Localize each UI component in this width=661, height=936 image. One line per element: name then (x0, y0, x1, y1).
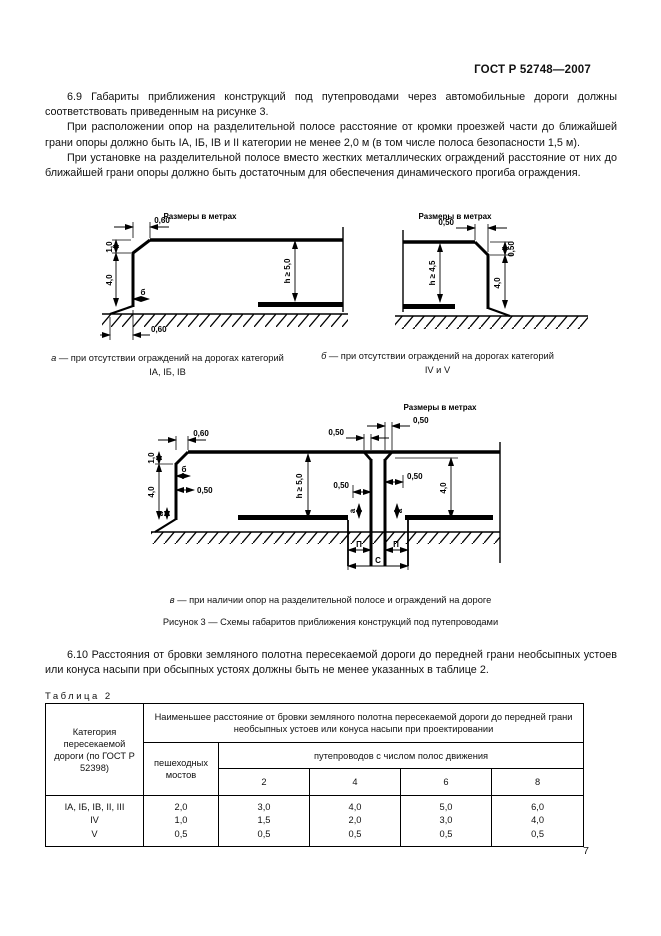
lane-header: 4 (310, 769, 401, 796)
figure-3-title: Рисунок 3 — Схемы габаритов приближения … (0, 617, 661, 627)
table-value: 0,5 (404, 828, 488, 842)
table-value: 1,5 (222, 814, 306, 828)
page-number: 7 (583, 845, 589, 857)
table-value: 4,0 (313, 801, 397, 815)
table-span-header: Наименьшее расстояние от бровки земляног… (144, 704, 584, 743)
dimension-label: 0,50 (438, 218, 454, 227)
dimension-label: 0,60 (193, 429, 209, 438)
table-2-label: Таблица 2 (45, 691, 113, 702)
section-6-10: 6.10 Расстояния от бровки земляного поло… (45, 648, 617, 678)
dimension-label: 1,0 (105, 241, 114, 253)
dimension-label: 0,50 (333, 481, 349, 490)
figure-b-diagram: Размеры в метрах 0,50 0,50 h ≥ 4,5 4,0 (393, 210, 623, 350)
dimension-label: 4,0 (147, 486, 156, 498)
lane-header: 8 (492, 769, 584, 796)
document-page: ГОСТ Р 52748—2007 6.9 Габариты приближен… (0, 0, 661, 936)
table-body-row: IА, IБ, IВ, II, III IV V 2,0 1,0 0,5 3,0… (46, 796, 584, 847)
dimension-label: б (141, 288, 146, 297)
table-value: 4,0 (495, 814, 580, 828)
units-label: Размеры в метрах (164, 212, 238, 221)
table-value: 0,5 (222, 828, 306, 842)
dimension-label: 0,50 (507, 241, 516, 257)
dimension-label: а (156, 511, 165, 516)
paragraph-6-10: 6.10 Расстояния от бровки земляного поло… (45, 648, 617, 678)
dimension-label: h ≥ 4,5 (428, 260, 437, 285)
dimension-label: h ≥ 5,0 (283, 258, 292, 283)
document-code: ГОСТ Р 52748—2007 (474, 64, 591, 76)
dimension-label: 0,50 (407, 472, 423, 481)
table-value: 6,0 (495, 801, 580, 815)
table-value: 3,0 (222, 801, 306, 815)
lane-header: 2 (219, 769, 310, 796)
figure-v-diagram: Размеры в метрах 0,60 1,0 4,0 б 0,50 (143, 400, 513, 600)
dimension-label: 4,0 (493, 277, 502, 289)
paragraph-6-9: 6.9 Габариты приближения конструкций под… (45, 90, 617, 120)
dimension-label: П (356, 540, 362, 549)
table-2: Категория пересекаемой дороги (по ГОСТ Р… (45, 703, 584, 847)
table-value: 0,5 (147, 828, 215, 842)
category-value: V (49, 828, 140, 842)
dimension-label: а (348, 508, 357, 513)
table-value: 2,0 (313, 814, 397, 828)
units-label: Размеры в метрах (404, 403, 478, 412)
dimension-label: 0,50 (328, 428, 344, 437)
dimension-label: 0,50 (197, 486, 213, 495)
figure-a-diagram: Размеры в метрах 0,60 1,0 4,0 h ≥ 5,0 б (100, 210, 350, 350)
paragraph-6-9-c: При установке на разделительной полосе в… (45, 151, 617, 181)
dimension-label: С (375, 556, 381, 565)
caption-b-text: — при отсутствии ограждений на дорогах к… (326, 351, 554, 361)
dimension-label: а (395, 508, 404, 513)
caption-a: а — при отсутствии ограждений на дорогах… (40, 352, 295, 379)
table-value: 5,0 (404, 801, 488, 815)
caption-a-categories: IА, IБ, IВ (149, 367, 186, 377)
section-6-9: 6.9 Габариты приближения конструкций под… (45, 90, 617, 181)
caption-a-text: — при отсутствии ограждений на дорогах к… (56, 353, 284, 363)
table-value: 3,0 (404, 814, 488, 828)
table-col2-header: пешеходных мостов (144, 743, 219, 796)
dimension-label: 0,60 (151, 325, 167, 334)
ground-hatching (151, 532, 500, 544)
dimension-label: б (182, 465, 187, 474)
dimension-label: 0,60 (154, 216, 170, 225)
ground-hatching (102, 314, 348, 327)
value-cell: 5,0 3,0 0,5 (401, 796, 492, 847)
value-cell: 3,0 1,5 0,5 (219, 796, 310, 847)
category-value: IV (49, 814, 140, 828)
table-value: 0,5 (313, 828, 397, 842)
category-value: IА, IБ, IВ, II, III (49, 801, 140, 815)
caption-b-categories: IV и V (425, 365, 450, 375)
units-label: Размеры в метрах (419, 212, 493, 221)
ground-hatching (395, 316, 588, 329)
table-value: 0,5 (495, 828, 580, 842)
table-col1-header: Категория пересекаемой дороги (по ГОСТ Р… (46, 704, 144, 796)
dimension-label: П (393, 540, 399, 549)
value-cell: 4,0 2,0 0,5 (310, 796, 401, 847)
value-cell: 6,0 4,0 0,5 (492, 796, 584, 847)
caption-b: б — при отсутствии ограждений на дорогах… (305, 350, 570, 377)
table-value: 1,0 (147, 814, 215, 828)
table-span2-header: путепроводов с числом полос движения (219, 743, 584, 769)
dimension-label: 4,0 (439, 482, 448, 494)
dimension-label: 0,50 (413, 416, 429, 425)
dimension-label: 4,0 (105, 274, 114, 286)
value-cell: 2,0 1,0 0,5 (144, 796, 219, 847)
lane-header: 6 (401, 769, 492, 796)
dimension-label: h ≥ 5,0 (295, 473, 304, 498)
dimension-label: 1,0 (147, 452, 156, 464)
caption-v: в — при наличии опор на разделительной п… (0, 594, 661, 608)
caption-v-text: — при наличии опор на разделительной пол… (175, 595, 492, 605)
table-value: 2,0 (147, 801, 215, 815)
paragraph-6-9-b: При расположении опор на разделительной … (45, 120, 617, 150)
category-cell: IА, IБ, IВ, II, III IV V (46, 796, 144, 847)
